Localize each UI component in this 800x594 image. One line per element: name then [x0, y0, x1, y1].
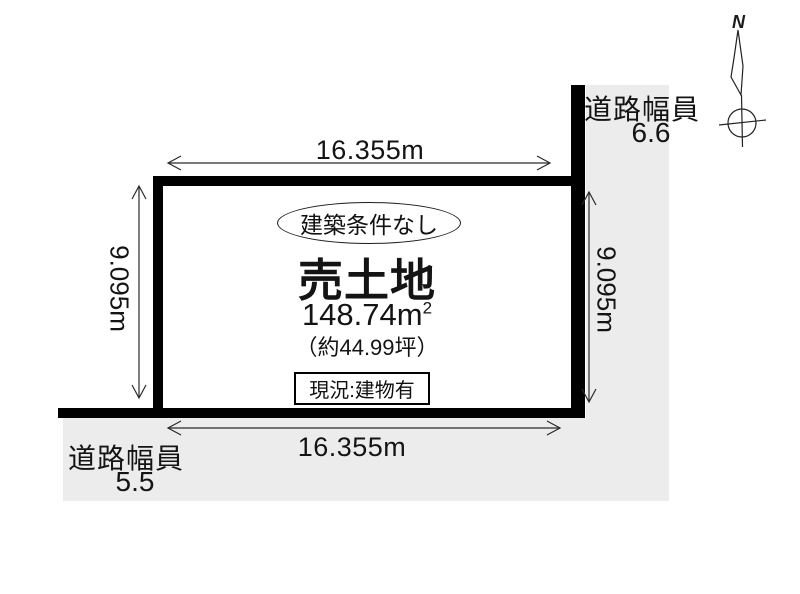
dimension-label-bottom: 16.355m — [252, 432, 452, 463]
area-sqm-superscript: 2 — [423, 299, 432, 318]
area-sqm-value: 148.74m — [302, 297, 423, 332]
north-label: N — [732, 12, 746, 32]
road-value-bottom: 5.5 — [100, 466, 170, 498]
parcel-area-tsubo: （約44.99坪） — [163, 330, 571, 362]
north-arrow-icon: N — [719, 12, 766, 147]
dimension-label-top: 16.355m — [270, 135, 470, 166]
building-condition-badge: 建築条件なし — [277, 202, 461, 244]
road-value-right: 6.6 — [616, 117, 686, 149]
parcel-area-sqm: 148.74m2 — [163, 297, 571, 333]
dimension-label-right: 9.095m — [591, 230, 622, 350]
land-plot-diagram: N 16.355m 16.355m 9.095m 9.095m 道路幅員 6.6… — [0, 0, 800, 594]
dimension-label-left: 9.095m — [104, 229, 135, 349]
current-status-box: 現況:建物有 — [294, 372, 430, 405]
